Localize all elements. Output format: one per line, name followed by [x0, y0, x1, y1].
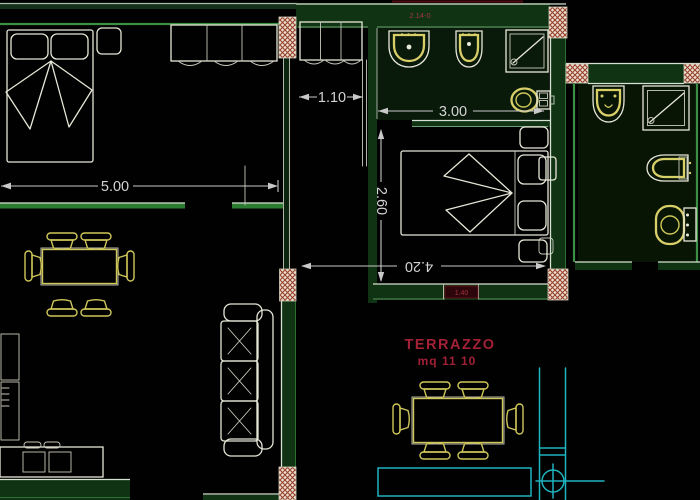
dim-bathroom-width: 3.00: [439, 104, 467, 120]
cad-floor-plan: 5.00 1.10 3.00 2.60 4.20 2.14-0 1.40 TER…: [0, 0, 700, 500]
column-hatch: [566, 64, 588, 83]
column-hatch: [280, 269, 297, 301]
terrace-name: TERRAZZO: [405, 337, 496, 353]
column-hatch: [279, 467, 296, 500]
dim-bedroom1-width: 5.00: [101, 179, 129, 195]
column-hatch: [548, 269, 568, 300]
column-hatch: [549, 7, 567, 38]
terrace-area: mq 11 10: [418, 354, 477, 368]
dim-hallway-width: 1.10: [318, 90, 346, 106]
wall-tag-text: 2.14-0: [409, 11, 430, 20]
column-hatch: [279, 17, 296, 58]
dim-bedroom2-depth: 2.60: [373, 187, 389, 215]
window-tag-text: 1.40: [455, 290, 469, 297]
floorplan-canvas: 5.00 1.10 3.00 2.60 4.20 2.14-0 1.40 TER…: [0, 0, 700, 500]
dim-bedroom2-width: 4.20: [405, 258, 433, 274]
column-hatch: [684, 64, 700, 83]
